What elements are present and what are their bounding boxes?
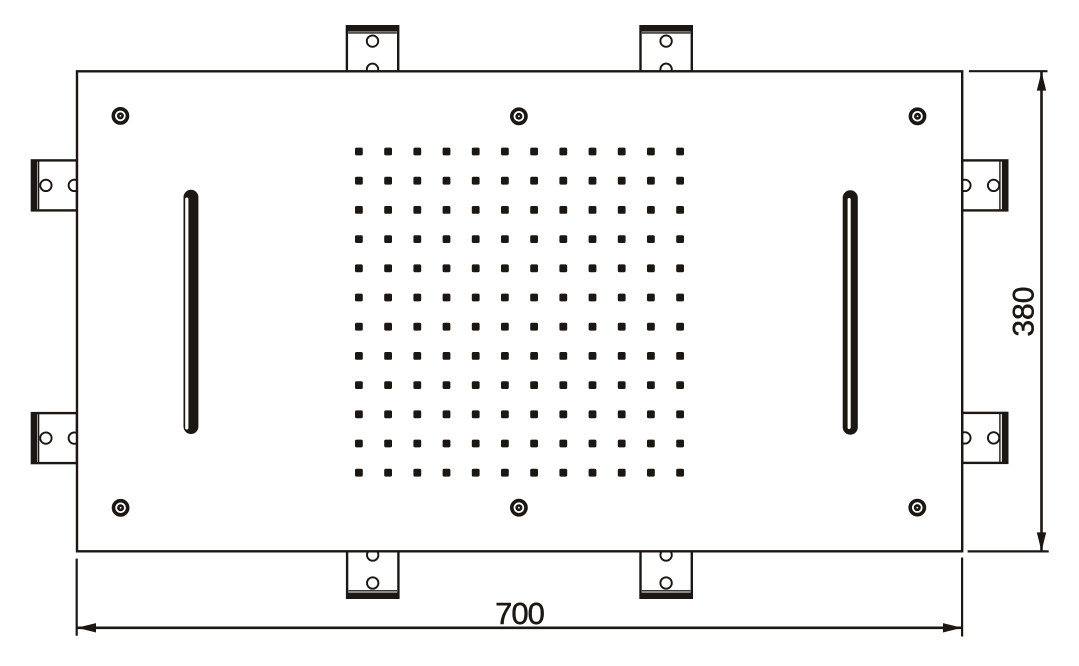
svg-text:700: 700 <box>495 596 544 631</box>
svg-text:380: 380 <box>1008 287 1041 337</box>
